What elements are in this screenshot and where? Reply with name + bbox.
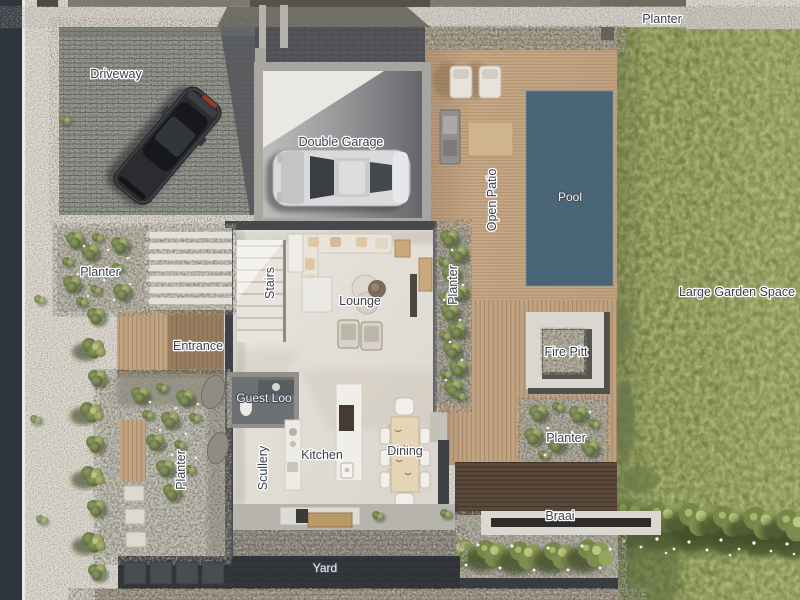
svg-text:Planter: Planter	[642, 12, 682, 26]
svg-text:Double Garage: Double Garage	[299, 135, 384, 149]
svg-text:Kitchen: Kitchen	[301, 448, 343, 462]
svg-text:Planter: Planter	[546, 431, 586, 445]
svg-text:Stairs: Stairs	[263, 267, 277, 299]
svg-text:Planter: Planter	[80, 265, 120, 279]
svg-text:Braai: Braai	[545, 509, 574, 523]
svg-text:Fire Pitt: Fire Pitt	[544, 345, 588, 359]
svg-text:Open Patio: Open Patio	[485, 169, 499, 232]
svg-text:Pool: Pool	[558, 190, 582, 204]
svg-text:Driveway: Driveway	[90, 67, 142, 81]
svg-text:Guest Loo: Guest Loo	[236, 391, 292, 405]
svg-text:Planter: Planter	[174, 450, 188, 490]
svg-text:Yard: Yard	[313, 561, 337, 575]
svg-text:Lounge: Lounge	[339, 294, 381, 308]
svg-text:Planter: Planter	[446, 265, 460, 305]
svg-text:Scullery: Scullery	[256, 445, 270, 490]
svg-text:Entrance: Entrance	[173, 339, 223, 353]
svg-text:Large Garden Space: Large Garden Space	[679, 285, 795, 299]
svg-text:Dining: Dining	[387, 444, 422, 458]
